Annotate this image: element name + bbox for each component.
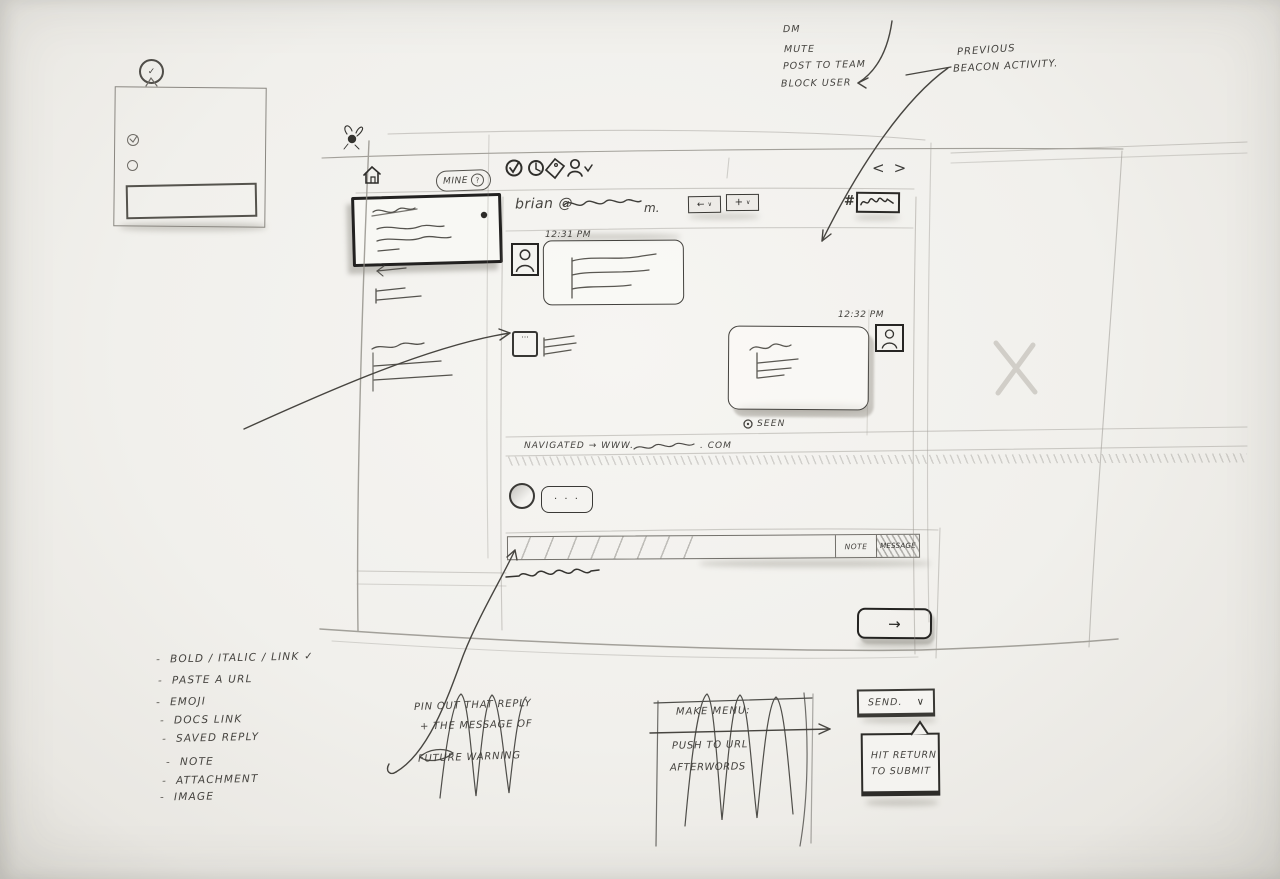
previous-activity-note: beacon activity. (953, 58, 1059, 74)
add-button[interactable]: + ∨ (726, 194, 759, 211)
message-timestamp: 12:32 PM (838, 310, 884, 320)
reply-note-line: future warning (418, 750, 521, 765)
submit-button[interactable]: → (857, 608, 932, 640)
smudge (700, 560, 930, 567)
scribble-placeholder (858, 194, 897, 210)
dots-icon: ··· (521, 333, 529, 342)
person-icon (513, 245, 537, 274)
close-check-icon[interactable] (507, 161, 522, 176)
smudge (855, 215, 899, 220)
make-menu-item: Afterwords (670, 761, 746, 773)
smudge (689, 214, 759, 219)
plus-icon: + (735, 197, 743, 208)
mini-radio-1[interactable] (127, 134, 139, 146)
event-text: Navigated → www. (524, 441, 634, 451)
message-bubble-inbound (543, 240, 684, 306)
tab-message[interactable]: Message (876, 535, 919, 557)
dropdown-caret-icon[interactable]: ∨ (917, 696, 924, 707)
mine-pill-label: Mine (443, 175, 468, 186)
context-menu-option: DM (783, 24, 801, 35)
seen-eye-icon (744, 420, 752, 428)
feature-item: Saved reply (162, 731, 260, 745)
bug-doodle (344, 126, 363, 149)
snooze-clock-icon[interactable] (529, 161, 543, 175)
typing-dots: · · · (554, 494, 580, 505)
conversation-from: brian @ (515, 195, 573, 212)
tab-note[interactable]: Note (835, 535, 876, 557)
context-menu-option: Block user (781, 77, 852, 89)
submit-arrow-icon: → (888, 614, 901, 632)
input-space (703, 535, 835, 558)
tooltip-line: to submit (871, 765, 938, 777)
note-scribbles (420, 693, 813, 846)
caret-icon: ∨ (708, 201, 713, 208)
smudge (858, 641, 934, 648)
message-timestamp: 12:31 PM (545, 230, 591, 240)
tab-message-label: Message (880, 542, 916, 550)
avatar-circle (509, 483, 535, 509)
feature-item: Bold / Italic / Link ✓ (156, 650, 314, 665)
feature-item: Emoji (156, 695, 206, 708)
tag-icon[interactable] (546, 159, 564, 178)
forward-arrow-icon[interactable]: > (894, 159, 916, 177)
reply-note-line: Pin out that reply (414, 698, 532, 713)
input-hatch (508, 536, 703, 559)
tooltip-line: Hit return (871, 749, 938, 761)
composer-input-bar[interactable]: Note Message (507, 534, 920, 561)
hash-label: # (844, 194, 855, 209)
context-menu-option: Post to team (783, 59, 866, 72)
mini-radio-2[interactable] (127, 160, 138, 171)
make-menu-item: Push to URL (672, 739, 748, 752)
x-doodle (996, 343, 1035, 393)
smudge (862, 717, 936, 723)
send-button[interactable]: Send. ∨ (857, 688, 935, 717)
feature-item: Image (160, 791, 214, 804)
feature-item: Docs link (160, 713, 243, 726)
send-button-label: Send. (868, 696, 903, 707)
tag-scribble-button[interactable] (856, 192, 900, 213)
smudge (866, 799, 938, 806)
make-menu-title: Make menu: (676, 705, 751, 717)
conversation-from-suffix: m. (644, 201, 660, 215)
paper-canvas: ✓ DM Mute Post to team Block user Previo… (0, 0, 1280, 879)
back-arrow-icon[interactable]: < (872, 159, 894, 177)
event-divider-band (506, 453, 1247, 465)
hit-return-tooltip: Hit return to submit (861, 733, 941, 797)
typing-indicator-icon: ··· (512, 331, 538, 357)
avatar (511, 243, 539, 276)
previous-activity-note: Previous (957, 43, 1016, 58)
nav-arrows: <> (872, 159, 915, 177)
seen-status: Seen (757, 419, 786, 429)
reply-note-line: + the message of (420, 719, 533, 733)
feature-item: Note (166, 756, 214, 769)
caret-icon: ∨ (746, 199, 750, 206)
context-menu-option: Mute (784, 44, 815, 55)
reply-arrow-icon: ← (697, 199, 705, 209)
person-icon (877, 326, 902, 350)
typing-bubble: · · · (541, 486, 593, 513)
mini-input-box[interactable] (126, 183, 258, 220)
mine-filter-pill[interactable]: Mine ? (436, 169, 492, 192)
conversation-list-item-selected[interactable] (351, 193, 503, 267)
event-text-suffix: . com (700, 441, 732, 451)
toolbar-home-icon[interactable] (364, 167, 380, 183)
reply-button[interactable]: ← ∨ (688, 196, 721, 214)
check-icon: ✓ (148, 67, 156, 77)
feature-item: Paste a URL (158, 673, 253, 687)
avatar (875, 324, 904, 352)
assignee-person-icon[interactable] (568, 160, 592, 176)
feature-item: Attachment (162, 773, 259, 787)
tab-note-label: Note (845, 542, 868, 551)
question-badge: ? (471, 173, 484, 186)
message-bubble-outbound (728, 326, 870, 411)
mini-avatar-head: ✓ (139, 59, 164, 84)
